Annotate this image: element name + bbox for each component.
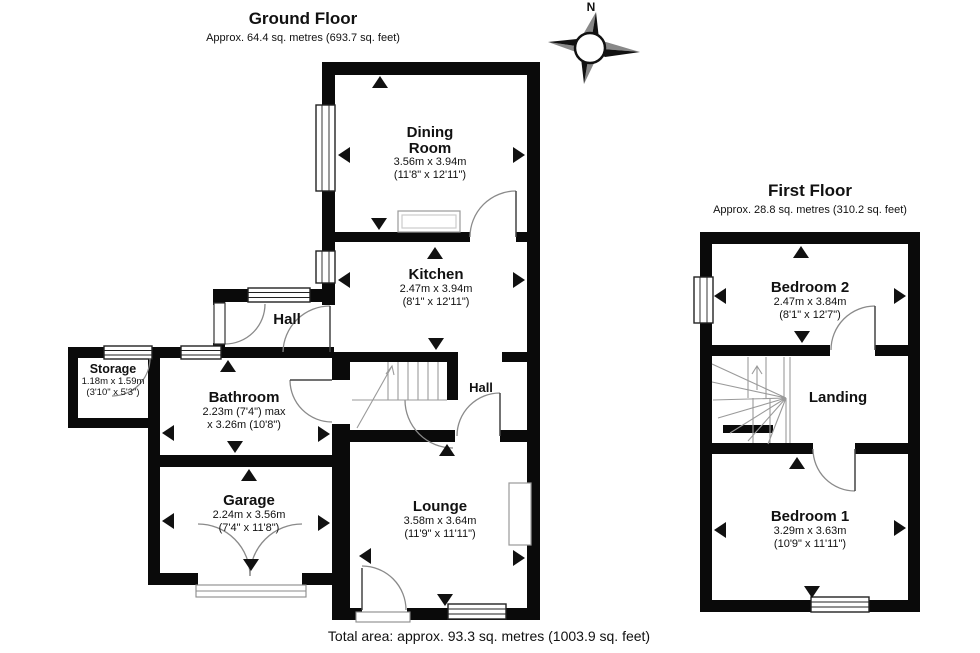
compass-rose [548, 12, 640, 84]
total-area-label: Total area: approx. 93.3 sq. metres (100… [328, 628, 650, 644]
room-label-hall-ground: Hall [273, 312, 301, 328]
north-label: N [587, 0, 596, 14]
room-label-garage: Garage 2.24m x 3.56m (7'4" x 11'8") [174, 493, 324, 535]
room-label-bedroom1: Bedroom 1 3.29m x 3.63m (10'9" x 11'11") [725, 509, 895, 551]
first-floor-title-text: First Floor [713, 182, 907, 201]
floorplan-page: { "ground_floor": { "title": "Ground Flo… [0, 0, 980, 653]
first-floor-title: First Floor Approx. 28.8 sq. metres (310… [713, 182, 907, 216]
room-label-dining: Dining Room 3.56m x 3.94m (11'8" x 12'11… [390, 125, 470, 182]
room-label-bathroom: Bathroom 2.23m (7'4") max x 3.26m (10'8"… [164, 390, 324, 432]
ground-floor-title-text: Ground Floor [206, 10, 400, 29]
room-label-storage: Storage 1.18m x 1.59m (3'10" x 5'3") [58, 363, 168, 398]
thresholds [196, 585, 410, 622]
ground-floor-title: Ground Floor Approx. 64.4 sq. metres (69… [206, 10, 400, 44]
stairs-ground [352, 362, 447, 428]
front-door-leaf [214, 303, 225, 344]
floorplan-canvas [0, 0, 980, 653]
first-floor-area-text: Approx. 28.8 sq. metres (310.2 sq. feet) [713, 204, 907, 216]
room-label-bedroom2: Bedroom 2 2.47m x 3.84m (8'1" x 12'7") [725, 280, 895, 322]
room-label-kitchen: Kitchen 2.47m x 3.94m (8'1" x 12'11") [351, 267, 521, 309]
room-label-lounge: Lounge 3.58m x 3.64m (11'9" x 11'11") [355, 499, 525, 541]
ground-floor-area-text: Approx. 64.4 sq. metres (693.7 sq. feet) [206, 32, 400, 44]
room-label-hall-inner: Hall [469, 381, 493, 395]
room-label-landing: Landing [809, 390, 867, 406]
